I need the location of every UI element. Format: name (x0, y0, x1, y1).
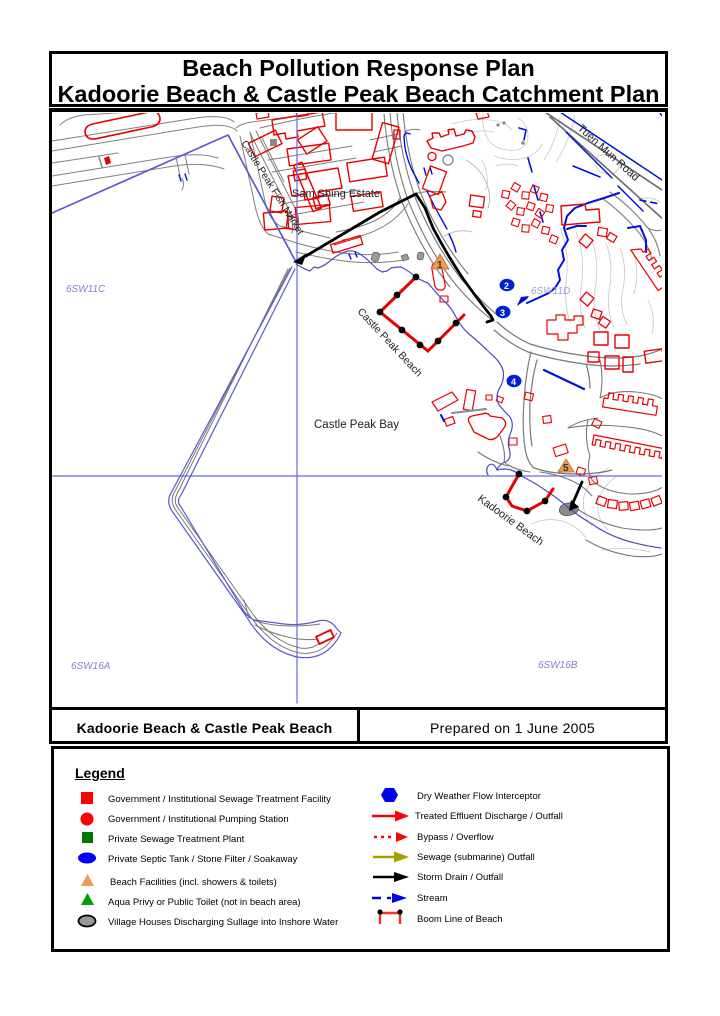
svg-text:Beach Facilities (incl. shower: Beach Facilities (incl. showers & toilet… (110, 877, 277, 888)
svg-text:6SW16A: 6SW16A (71, 661, 111, 672)
svg-text:1: 1 (437, 260, 443, 271)
svg-text:Private Septic Tank / Stone Fi: Private Septic Tank / Stone Filter / Soa… (108, 854, 298, 865)
svg-text:6SW11C: 6SW11C (66, 284, 106, 295)
svg-text:Government / Institutional Pum: Government / Institutional Pumping Stati… (108, 814, 289, 825)
svg-text:Castle Peak Bay: Castle Peak Bay (314, 419, 399, 431)
svg-text:Sam Shing Estate: Sam Shing Estate (292, 188, 380, 200)
svg-text:Storm Drain / Outfall: Storm Drain / Outfall (417, 872, 503, 883)
svg-text:6SW16B: 6SW16B (538, 660, 578, 671)
svg-text:Government / Institutional Sew: Government / Institutional Sewage Treatm… (108, 794, 331, 805)
svg-text:6SW11D: 6SW11D (531, 286, 570, 297)
svg-text:Aqua Privy or Public Toilet (n: Aqua Privy or Public Toilet (not in beac… (108, 897, 301, 908)
svg-text:Castle Peak Beach: Castle Peak Beach (355, 306, 425, 380)
svg-text:Bypass / Overflow: Bypass / Overflow (417, 832, 494, 843)
svg-text:Dry Weather Flow Interceptor: Dry Weather Flow Interceptor (417, 791, 541, 802)
svg-text:Sewage (submarine) Outfall: Sewage (submarine) Outfall (417, 852, 535, 863)
svg-text:5: 5 (563, 463, 569, 474)
svg-text:Private Sewage Treatment Plant: Private Sewage Treatment Plant (108, 834, 245, 845)
svg-text:Stream: Stream (417, 893, 448, 904)
svg-text:Village Houses Discharging Sul: Village Houses Discharging Sullage into … (108, 917, 338, 928)
svg-text:Boom Line of Beach: Boom Line of Beach (417, 914, 503, 925)
svg-text:Treated Effluent Discharge / O: Treated Effluent Discharge / Outfall (415, 811, 563, 822)
svg-text:3: 3 (500, 308, 505, 318)
svg-text:2: 2 (504, 281, 509, 291)
svg-text:4: 4 (511, 377, 516, 387)
